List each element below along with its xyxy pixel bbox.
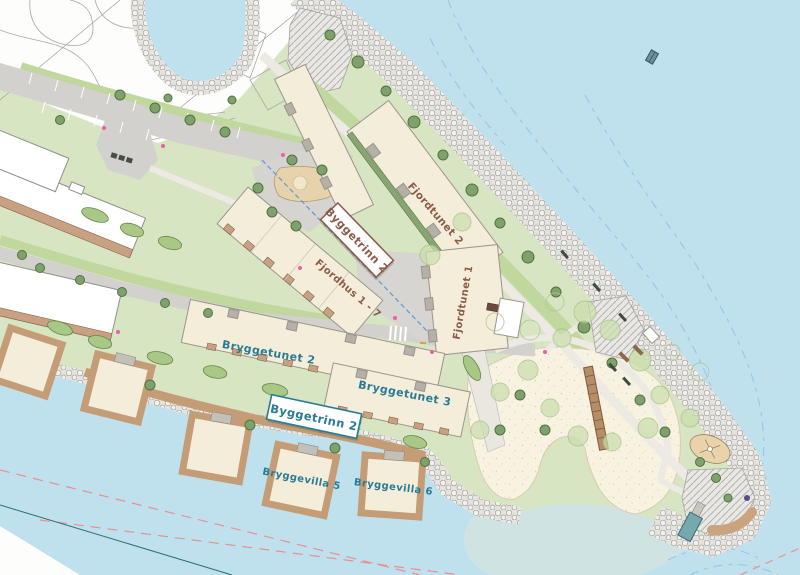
site-plan-map: Byggetrinn 2 Fjordtunet 2 Fjordhus 1 - 7… (0, 0, 800, 575)
villa-2 (182, 408, 250, 481)
plaza-feature-dot (744, 495, 750, 501)
